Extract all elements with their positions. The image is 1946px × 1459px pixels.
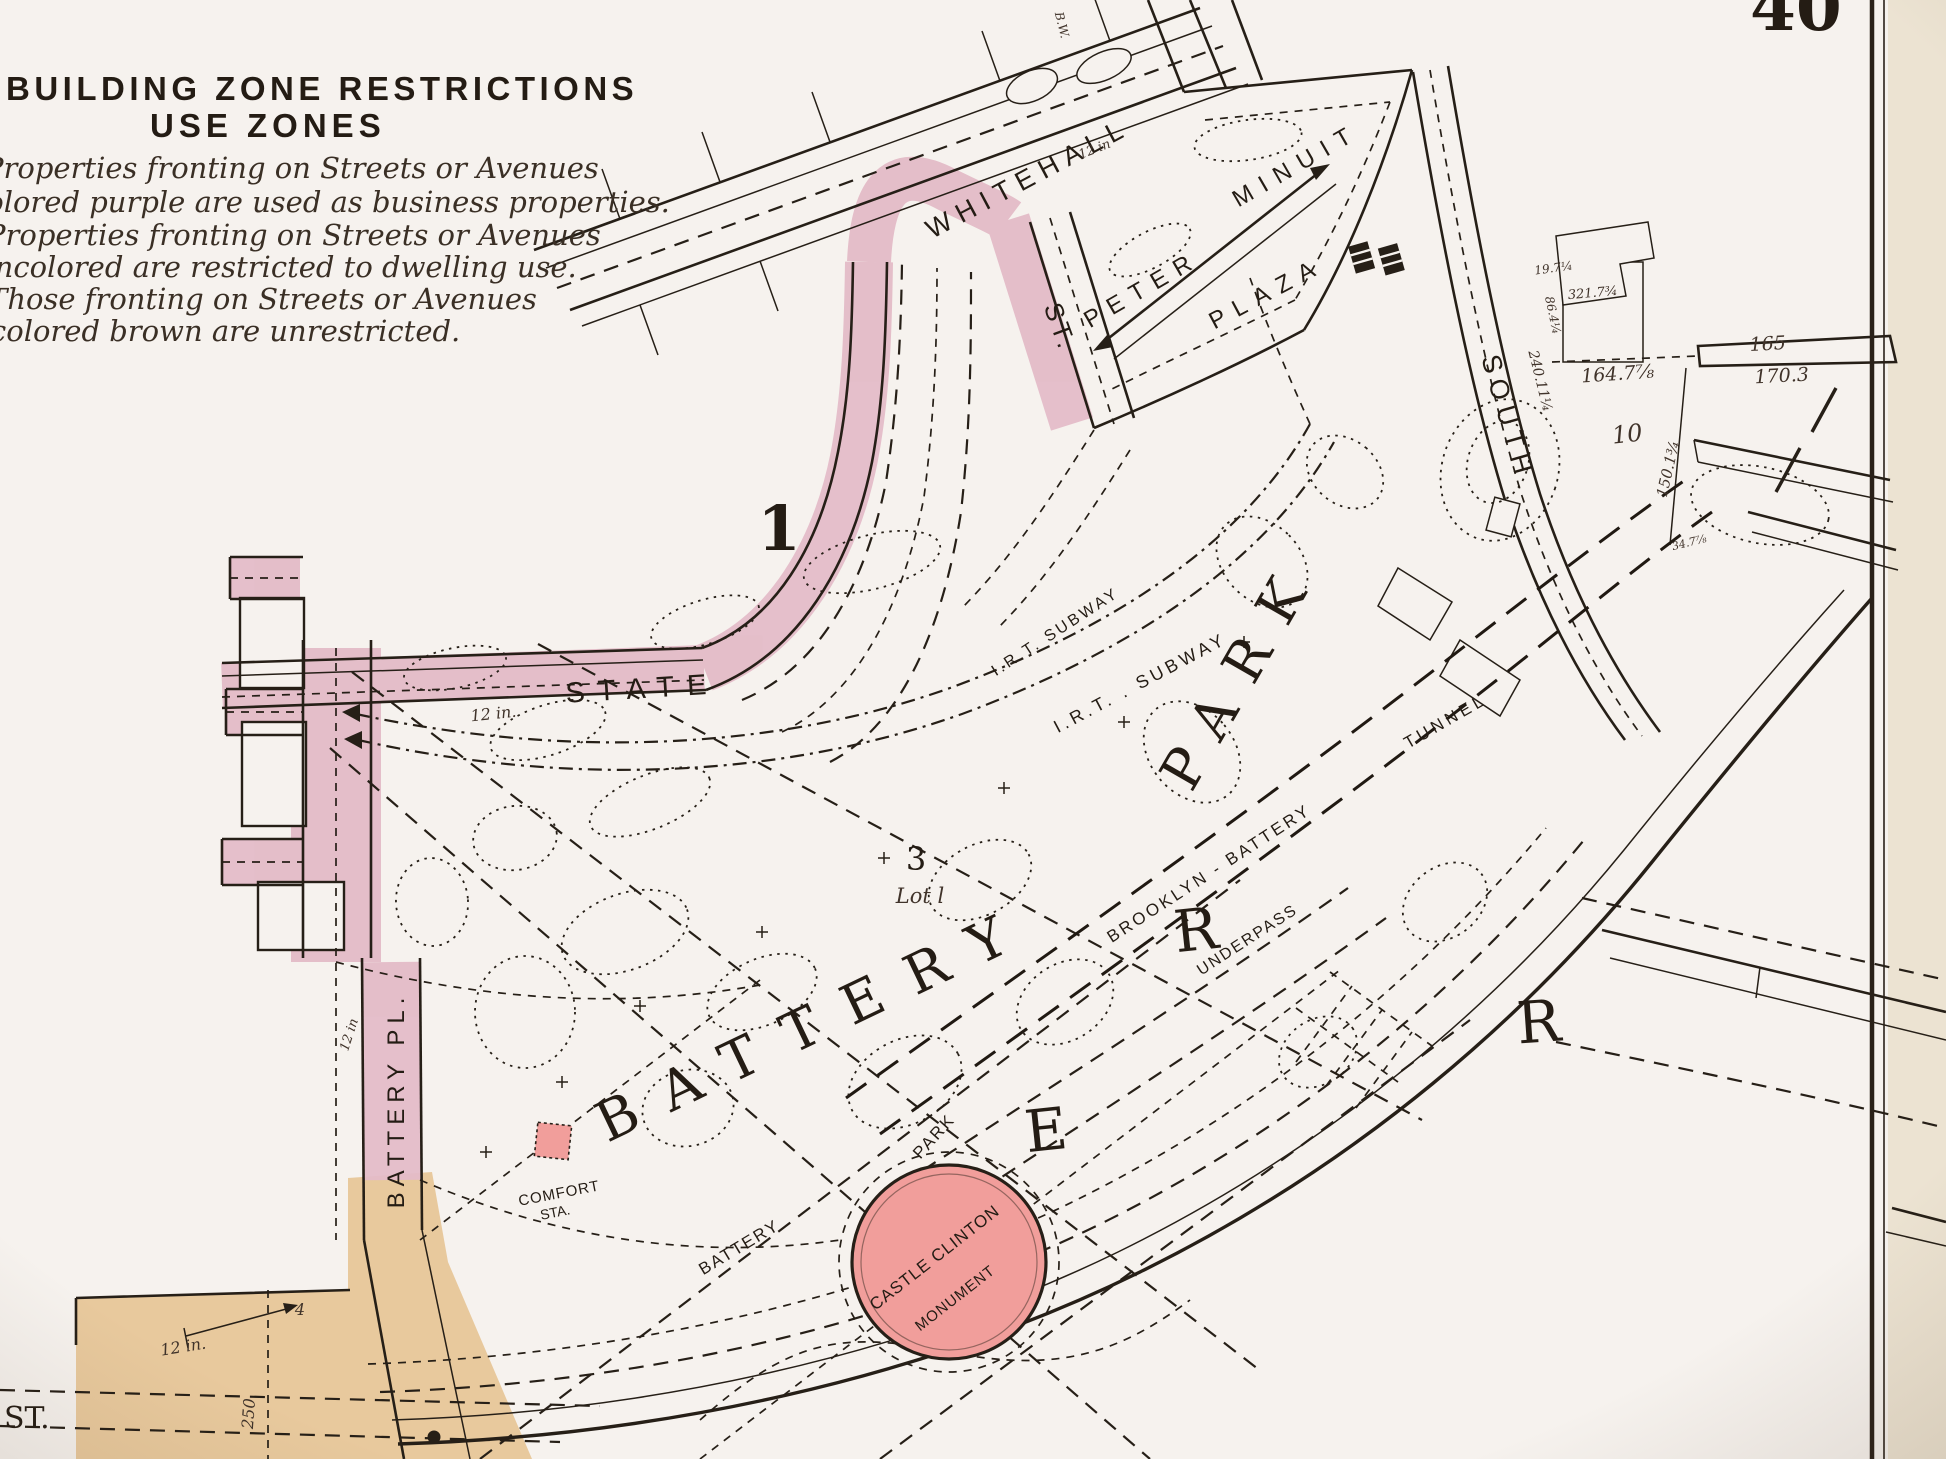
photo-vignette	[0, 0, 1946, 1459]
map-canvas: 40 BUILDING ZONE RESTRICTIONS USE ZONES …	[0, 0, 1946, 1459]
atlas-page: 40 BUILDING ZONE RESTRICTIONS USE ZONES …	[0, 0, 1946, 1459]
